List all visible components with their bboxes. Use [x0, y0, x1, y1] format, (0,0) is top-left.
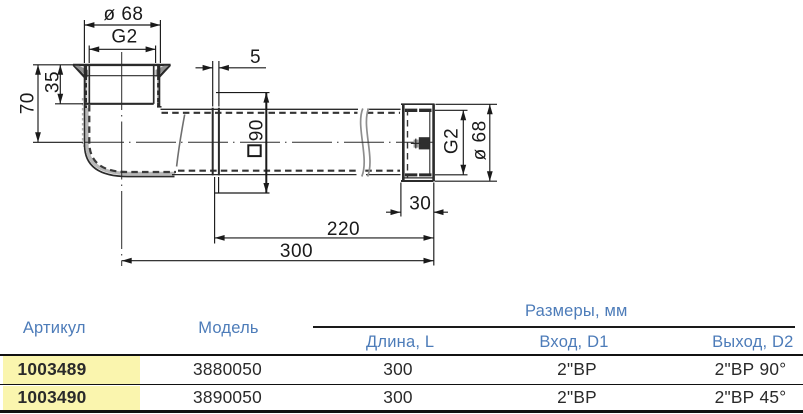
svg-text:G2: G2 — [111, 27, 137, 48]
svg-text:ø 68: ø 68 — [469, 120, 490, 160]
svg-text:ø 68: ø 68 — [103, 4, 143, 25]
svg-text:220: 220 — [327, 219, 360, 240]
svg-text:G2: G2 — [442, 128, 463, 154]
svg-text:300: 300 — [280, 241, 313, 262]
svg-text:90: 90 — [246, 119, 267, 141]
svg-text:35: 35 — [42, 71, 63, 93]
svg-text:5: 5 — [250, 47, 261, 68]
svg-text:30: 30 — [409, 193, 431, 214]
svg-text:70: 70 — [17, 92, 38, 114]
